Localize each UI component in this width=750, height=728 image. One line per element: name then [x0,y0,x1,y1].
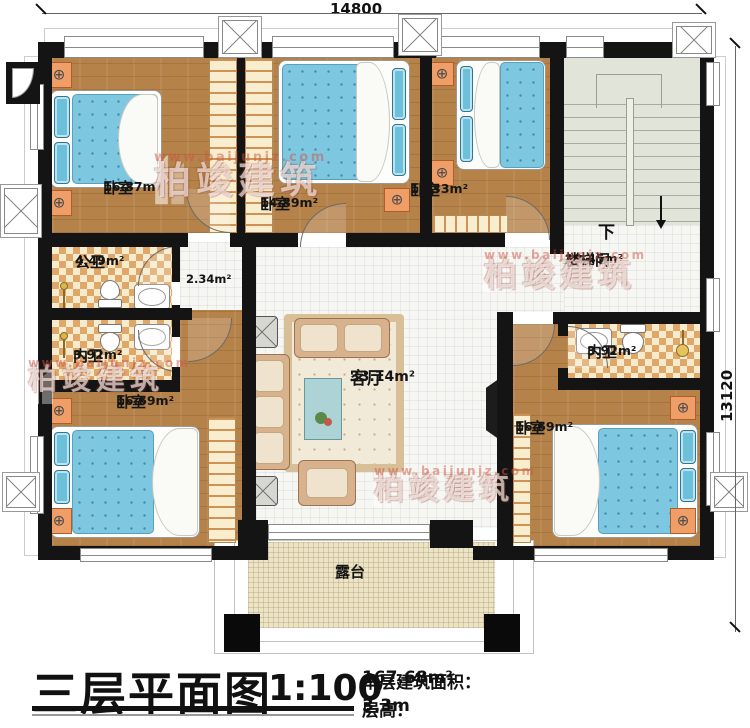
wall-v-living-br [497,312,513,546]
pilaster-left-lower [6,476,36,508]
wall-bath-right-west [558,368,568,378]
title-underline [32,706,354,711]
corridor-floor [497,247,564,312]
wall-stairhall-south [553,312,700,324]
bed-tr-pillow [460,116,473,162]
wall-v-tr-stair [550,42,564,254]
table-flower [324,418,332,426]
towel-rail [63,340,65,358]
pilaster-right-lower [714,476,744,508]
wall-bath-right-south [558,378,700,390]
toilet-public-bath [98,280,122,308]
bed-br-pillow [680,468,696,502]
closet-bedroom-bl [208,417,236,543]
wall-bath-east [172,320,180,337]
wall-bath-east [172,242,180,282]
bed-tl-pillow [54,96,70,138]
terrace-sliding-door [268,524,430,540]
nightstand [670,396,696,420]
title-underline-thin [32,714,354,716]
sofa-cushion [254,396,284,428]
bed-bl-mattress [72,430,154,534]
wall-v-tm-tr [420,58,432,233]
sofa-cushion [254,360,284,392]
stair-center-rail [626,98,634,226]
wall-v-hall-living [242,233,256,546]
stair-direction-arrow [656,220,666,229]
bed-tm-pillow [392,68,406,120]
sofa-cushion [254,432,284,464]
pilaster-top-2 [402,18,438,52]
terrace-column-right [484,614,520,652]
terrace-floor [248,542,495,628]
shower-head [676,344,689,357]
towel-rail [63,290,65,310]
window-top-tm [272,36,394,58]
bed-tr-pillow [460,66,473,112]
dimension-line-right [735,46,736,632]
pilaster-top-3 [676,26,712,54]
window-right-hall [706,278,720,332]
dimension-top: 14800 [330,0,382,18]
wall-bath-south [52,380,180,392]
sink-public-bath [134,284,170,310]
wall-terrace-stub-right [430,520,473,548]
coffee-table [304,378,342,440]
bed-br-pillow [680,430,696,464]
wall-bath-right-west [558,324,568,336]
bed-tm-pillow [392,124,406,176]
dimension-right: 13120 [718,342,736,422]
stair-direction-line [660,196,662,222]
sofa-cushion [300,324,338,352]
terrace-column-left [224,614,260,652]
nightstand [430,62,454,86]
nightstand [670,508,696,534]
wall-bath-divider [52,308,192,320]
pilaster-top-1 [222,20,258,54]
nightstand [384,188,410,212]
bed-bl-pillow [54,432,70,466]
wall-bath-east [172,367,180,380]
towel-rail-knob [60,282,68,290]
window-bottom-left [80,548,212,562]
window-bottom-right [534,548,668,562]
window-top-tr [436,36,540,58]
sofa-cushion [306,468,348,498]
bed-br-mattress [598,428,678,534]
bed-bl-sheet [152,428,198,536]
window-top-tl [64,36,204,58]
wall-h-bedrooms [230,233,298,247]
bed-tl-sheet [118,94,158,184]
wall-h-bedrooms [346,233,505,247]
room-label-hall: 2.34m² [186,272,242,286]
window-top-stair [566,36,604,58]
wall-v-tl-tm [237,58,245,233]
closet-bedroom-tr [432,215,508,233]
dimension-line-top [42,13,702,14]
floor-plan-page: 下 卧室16.87m² [0,0,750,728]
pilaster-left [4,188,38,234]
stair-down-label: 下 [598,218,622,243]
window-right-stair [706,62,720,106]
bed-tm-mattress [282,64,362,180]
flue-box [6,62,40,104]
dimension-tick [35,3,46,14]
bed-tr-sheet [474,62,500,168]
bed-tl-pillow [54,142,70,184]
towel-rail-knob [60,332,68,340]
wall-h-bedrooms [52,233,188,247]
sofa-cushion [344,324,382,352]
bed-bl-pillow [54,470,70,504]
bed-tr-mattress [500,62,544,168]
